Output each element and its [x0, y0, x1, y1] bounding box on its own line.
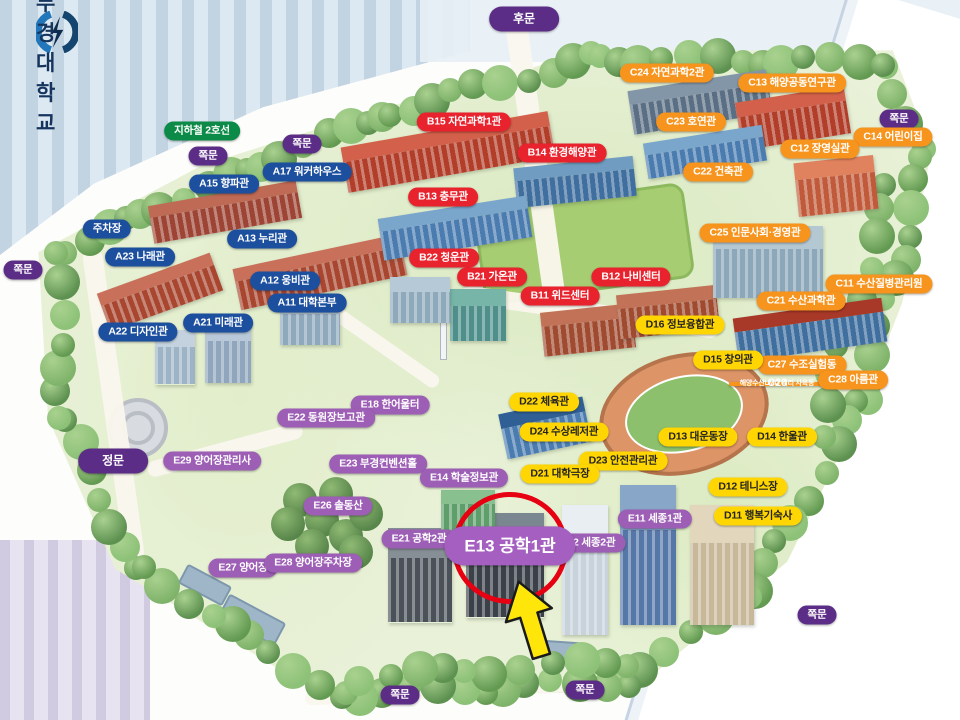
- label-C24: C24 자연과학2관: [620, 63, 714, 82]
- label-C21: C21 수산과학관: [757, 291, 846, 310]
- label-B12: B12 나비센터: [591, 267, 670, 286]
- building-roof: [450, 289, 506, 306]
- tree: [379, 664, 403, 688]
- building: [620, 485, 676, 625]
- label-gate-side-3: 쪽문: [880, 109, 919, 128]
- tree: [471, 656, 507, 692]
- tree: [44, 241, 68, 265]
- tree: [202, 604, 226, 628]
- label-E23: E23 부경컨벤션홀: [329, 454, 427, 473]
- building: [390, 277, 450, 323]
- label-B13: B13 충무관: [408, 187, 478, 206]
- label-B15: B15 자연과학1관: [417, 112, 511, 131]
- label-gate-humun: 후문: [489, 7, 559, 32]
- label-gate-side-1: 쪽문: [189, 146, 228, 165]
- building-roof: [390, 277, 450, 292]
- building-face: [450, 306, 506, 341]
- label-C26: C26해양수산LMO 격리 사육동: [729, 382, 825, 386]
- label-E13: E13 공학1관: [444, 526, 575, 565]
- tree: [47, 406, 71, 430]
- tree: [378, 103, 402, 127]
- label-D21: D21 대학극장: [520, 464, 599, 483]
- label-D22: D22 체육관: [509, 392, 579, 411]
- label-gate-side-4: 쪽문: [4, 260, 43, 279]
- tree: [271, 507, 305, 541]
- tree: [275, 653, 311, 689]
- university-logo-text: 국립부경대학교: [36, 0, 56, 137]
- label-A17: A17 워커하우스: [263, 162, 352, 181]
- building-face: [155, 347, 195, 384]
- label-D12: D12 테니스장: [708, 477, 787, 496]
- label-metro-line2: 지하철 2호선: [164, 121, 240, 140]
- label-gate-side-5: 쪽문: [381, 685, 420, 704]
- label-gate-jeongmun: 정문: [78, 449, 148, 474]
- tree: [877, 79, 907, 109]
- tree: [344, 666, 374, 696]
- tree: [91, 509, 127, 545]
- label-E28: E28 양어장주차장: [264, 553, 362, 572]
- label-B11: B11 위드센터: [521, 286, 600, 305]
- building-face: [280, 314, 340, 345]
- label-E29: E29 양어장관리사: [163, 451, 261, 470]
- tree: [859, 218, 895, 254]
- label-C11: C11 수산질병관리원: [825, 274, 932, 293]
- label-gate-side-2: 쪽문: [283, 134, 322, 153]
- label-parking: 주차장: [83, 219, 131, 238]
- label-gate-side-7: 쪽문: [798, 605, 837, 624]
- building: [450, 289, 506, 341]
- label-C14: C14 어린이집: [853, 127, 932, 146]
- label-C25: C25 인문사회·경영관: [700, 223, 811, 242]
- label-C12: C12 장영실관: [780, 139, 859, 158]
- label-D24: D24 수상레저관: [520, 422, 609, 441]
- label-B21: B21 가온관: [457, 267, 527, 286]
- label-A15: A15 향파관: [189, 174, 259, 193]
- tree: [564, 642, 600, 678]
- building-face: [690, 543, 754, 625]
- label-B22: B22 청운관: [409, 248, 479, 267]
- building: [562, 505, 608, 635]
- label-C28: C28 아름관: [818, 370, 888, 389]
- tree: [51, 333, 75, 357]
- label-E14: E14 학술정보관: [420, 468, 508, 487]
- label-E22: E22 동원장보고관: [277, 408, 375, 427]
- building: [793, 155, 878, 217]
- label-D15: D15 창의관: [693, 350, 763, 369]
- campus-map: 백경 광장 국립부경대학교 후문쪽문쪽문쪽문쪽문정문쪽문쪽문쪽문지하철 2호선A…: [0, 0, 960, 720]
- tree: [402, 651, 438, 687]
- label-E11: E11 세종1관: [618, 509, 692, 528]
- label-A21: A21 미래관: [183, 313, 253, 332]
- tree: [893, 190, 929, 226]
- label-A12: A12 웅비관: [250, 271, 320, 290]
- label-A22: A22 디자인관: [98, 322, 177, 341]
- building-face: [620, 530, 676, 625]
- tree: [815, 42, 845, 72]
- tree: [871, 53, 895, 77]
- label-subtext: 해양수산LMO 격리 사육동: [740, 380, 815, 388]
- label-D14: D14 한울관: [747, 427, 817, 446]
- label-C22: C22 건축관: [683, 162, 753, 181]
- tree: [810, 387, 846, 423]
- label-B14: B14 환경해양관: [518, 143, 607, 162]
- label-A13: A13 누리관: [227, 229, 297, 248]
- tree: [815, 461, 839, 485]
- label-C13: C13 해양공동연구관: [738, 73, 846, 92]
- monument-tower: [440, 318, 447, 360]
- building-face: [205, 341, 251, 383]
- building-face: [390, 292, 450, 323]
- label-E26: E26 솔동산: [303, 496, 372, 515]
- label-C23: C23 호연관: [656, 112, 726, 131]
- label-A11: A11 대학본부: [268, 293, 347, 312]
- label-D16: D16 정보융합관: [636, 315, 725, 334]
- label-A23: A23 나래관: [105, 247, 175, 266]
- label-D11: D11 행복기숙사: [714, 506, 802, 525]
- label-D13: D13 대운동장: [658, 427, 737, 446]
- building-face: [388, 558, 452, 623]
- label-gate-side-6: 쪽문: [566, 680, 605, 699]
